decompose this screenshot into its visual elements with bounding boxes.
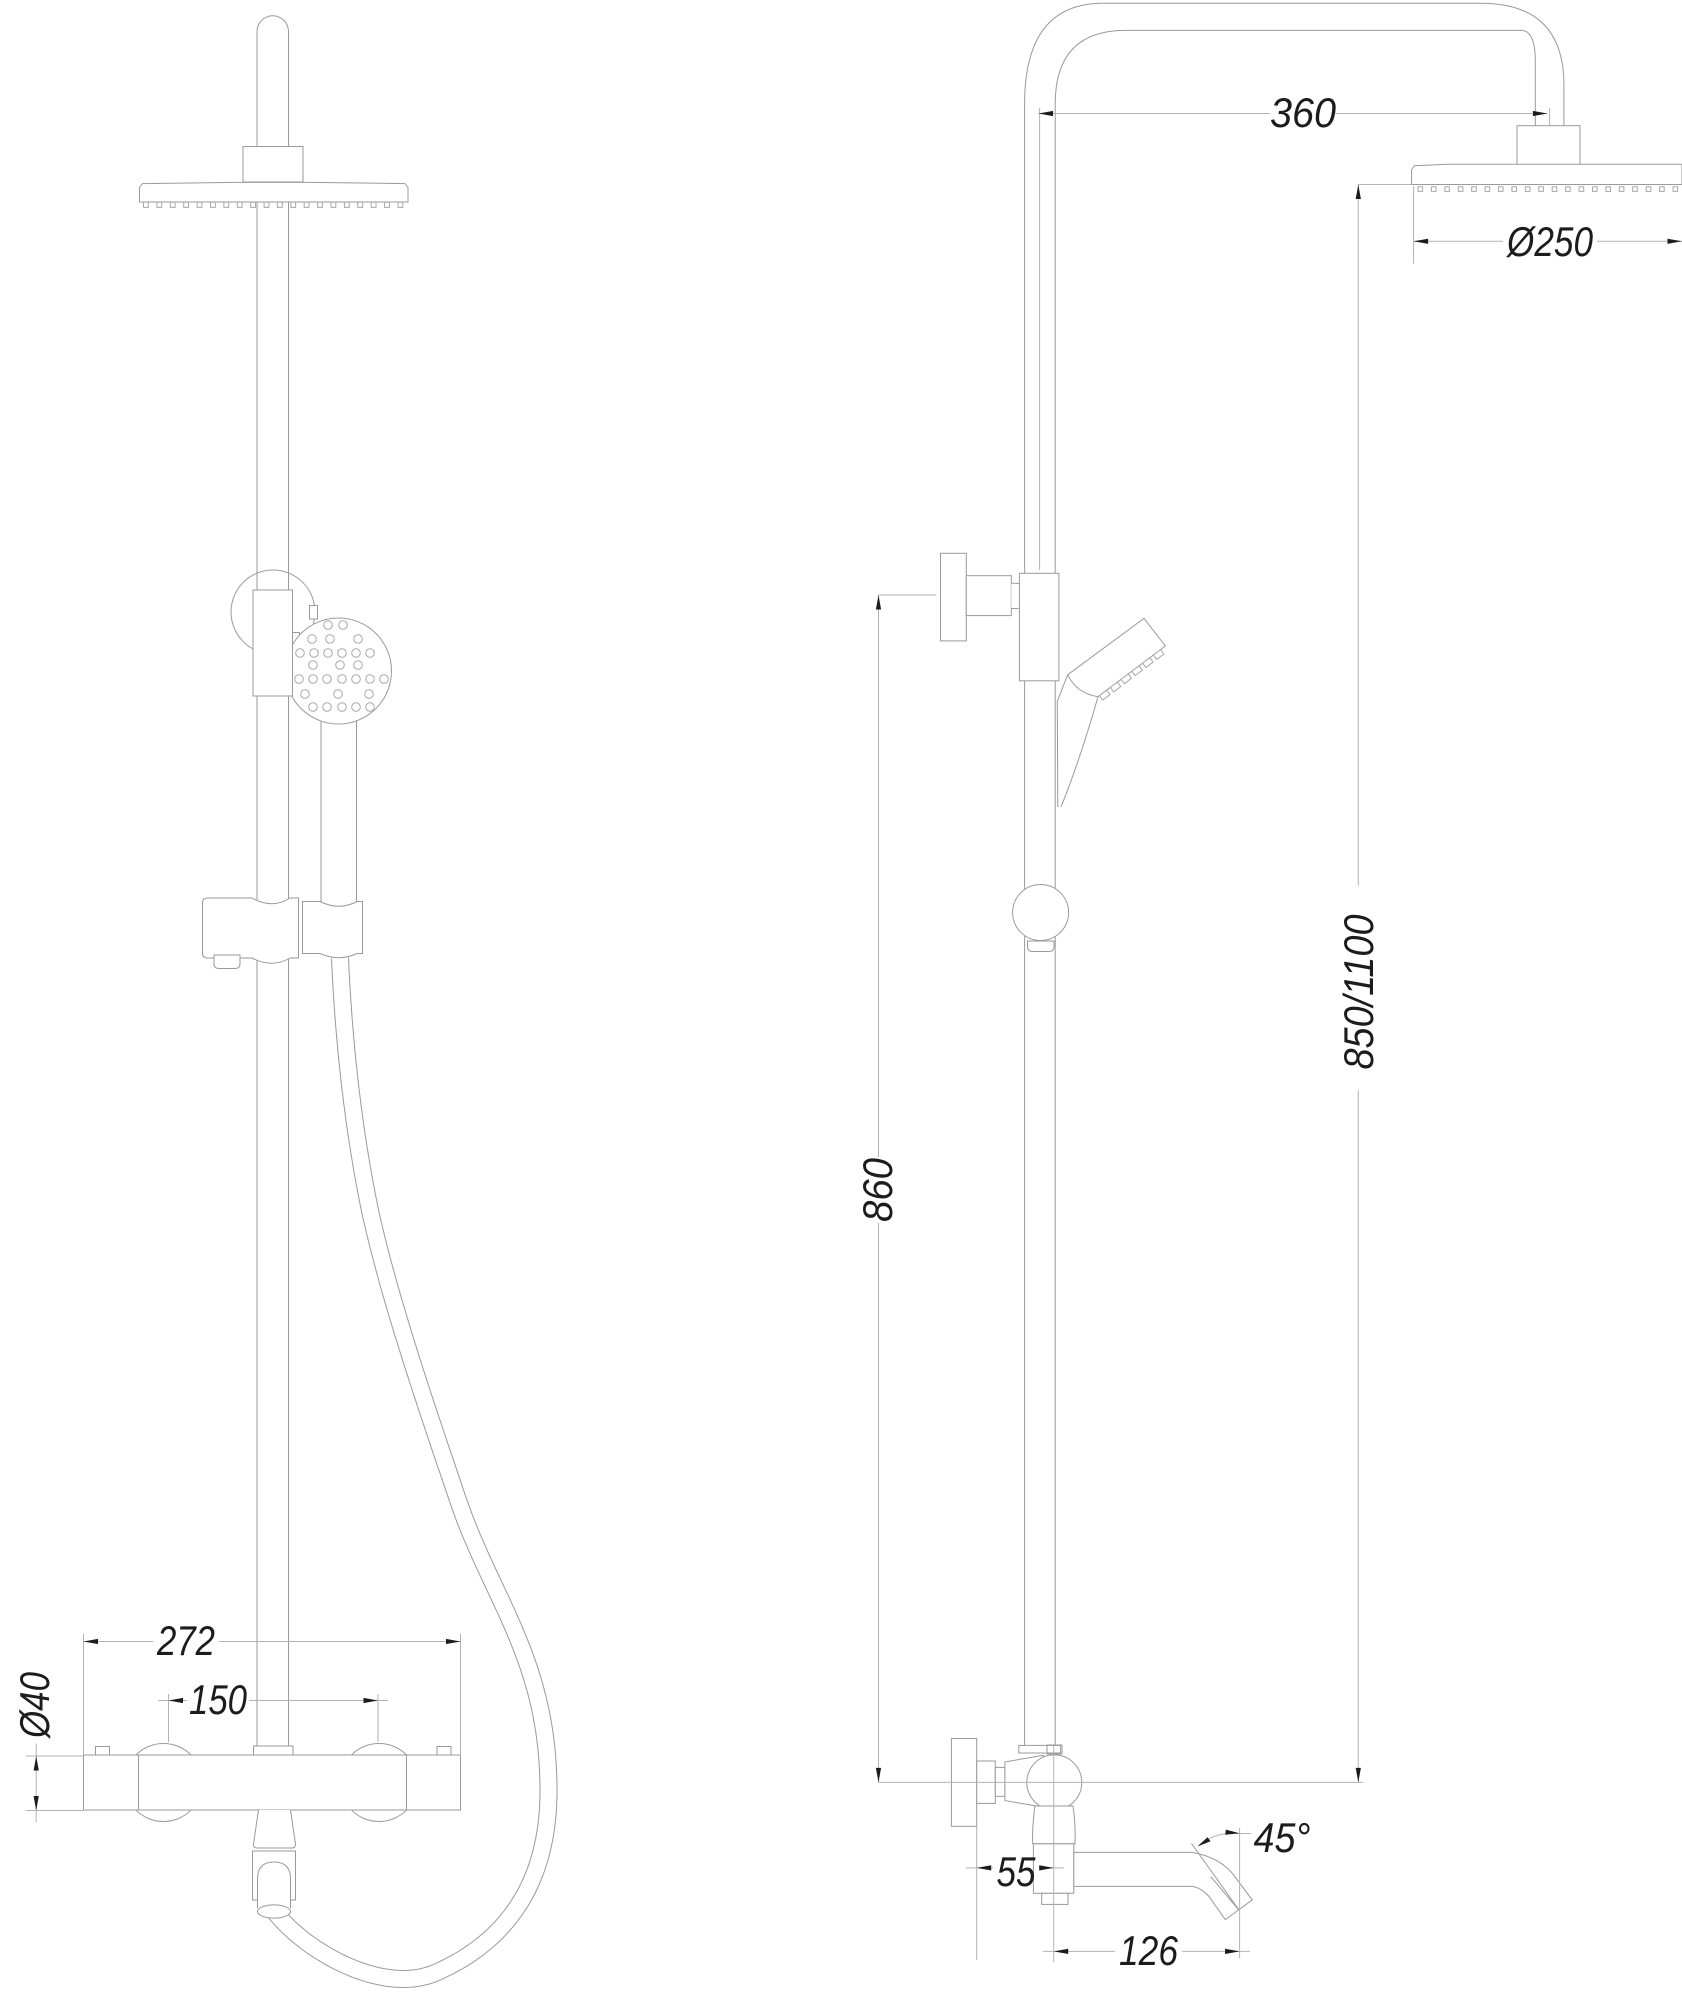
svg-text:Ø40: Ø40 xyxy=(11,1671,58,1739)
svg-text:272: 272 xyxy=(156,1617,215,1664)
svg-text:126: 126 xyxy=(1119,1927,1179,1974)
svg-text:360: 360 xyxy=(1270,89,1337,136)
svg-text:860: 860 xyxy=(854,1157,901,1222)
svg-text:150: 150 xyxy=(189,1676,248,1723)
svg-text:55: 55 xyxy=(997,1848,1037,1895)
svg-text:45°: 45° xyxy=(1254,1814,1311,1861)
svg-text:850/1100: 850/1100 xyxy=(1335,914,1382,1070)
svg-text:Ø250: Ø250 xyxy=(1505,218,1593,265)
